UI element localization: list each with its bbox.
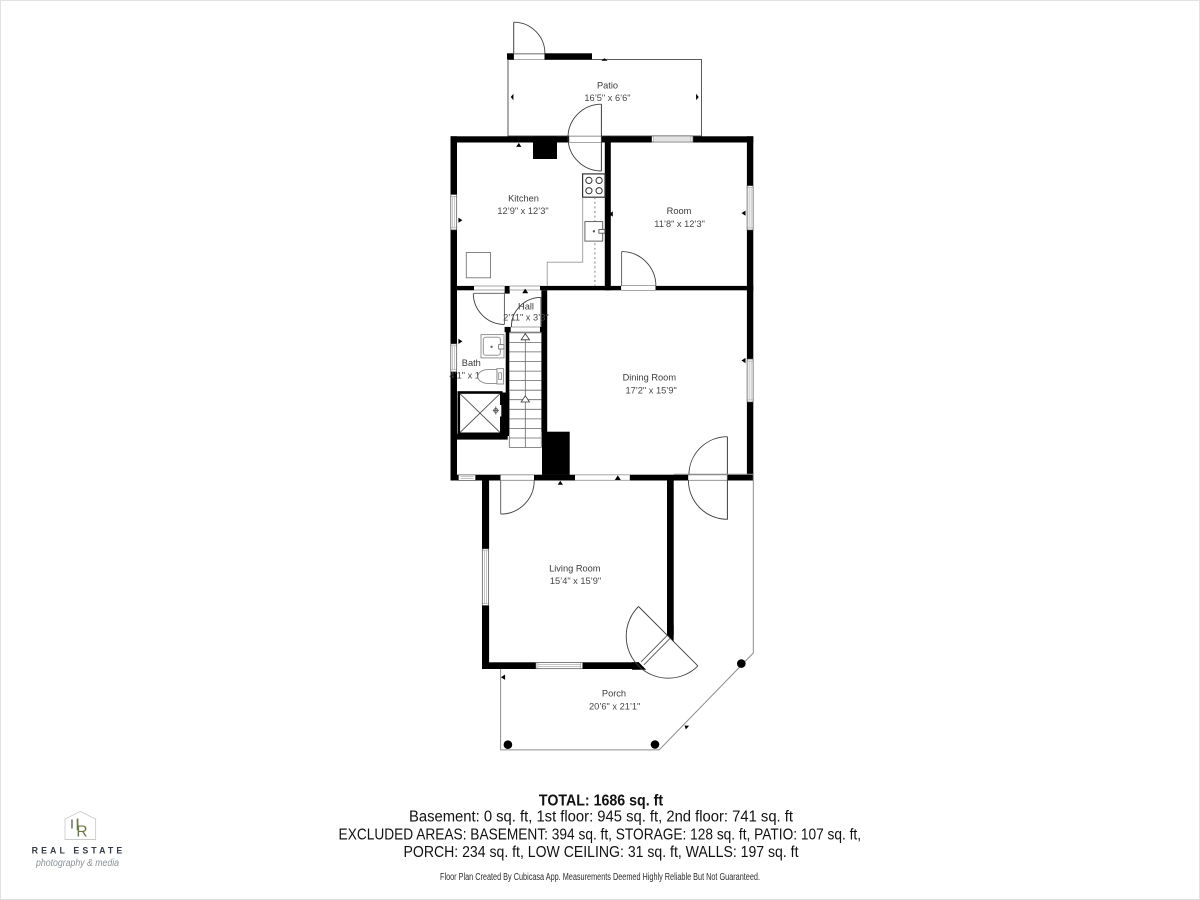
svg-text:Porch: Porch <box>602 689 626 699</box>
svg-text:Floor Plan Created By Cubicasa: Floor Plan Created By Cubicasa App. Meas… <box>440 872 760 883</box>
svg-text:PORCH: 234 sq. ft, LOW CEILING: PORCH: 234 sq. ft, LOW CEILING: 31 sq. f… <box>404 844 800 861</box>
svg-text:REAL ESTATE: REAL ESTATE <box>32 845 126 855</box>
svg-text:EXCLUDED AREAS: BASEMENT: 394: EXCLUDED AREAS: BASEMENT: 394 sq. ft, ST… <box>339 826 862 843</box>
svg-text:17’2" x 15’9": 17’2" x 15’9" <box>625 386 676 396</box>
svg-text:16’5" x 6’6": 16’5" x 6’6" <box>584 93 630 103</box>
svg-text:R: R <box>76 823 87 840</box>
svg-text:15’4" x 15’9": 15’4" x 15’9" <box>550 576 601 586</box>
svg-text:Basement: 0 sq. ft, 1st floor:: Basement: 0 sq. ft, 1st floor: 945 sq. f… <box>409 808 794 825</box>
svg-text:Dining Room: Dining Room <box>623 373 677 383</box>
svg-text:photography & media: photography & media <box>35 857 119 869</box>
svg-text:I: I <box>70 818 73 832</box>
svg-text:2’11" x 3’3": 2’11" x 3’3" <box>503 313 548 323</box>
svg-text:Room: Room <box>667 206 692 216</box>
svg-text:Hall: Hall <box>518 302 534 312</box>
svg-text:Living Room: Living Room <box>549 563 601 573</box>
svg-text:TOTAL: 1686 sq. ft: TOTAL: 1686 sq. ft <box>539 792 664 809</box>
svg-text:11’8" x 12’3": 11’8" x 12’3" <box>654 219 705 229</box>
svg-text:Patio: Patio <box>597 81 618 91</box>
svg-text:Bath: Bath <box>462 358 481 368</box>
svg-text:Kitchen: Kitchen <box>508 193 539 203</box>
svg-text:20’6" x 21’1": 20’6" x 21’1" <box>589 701 640 711</box>
svg-text:12’9" x 12’3": 12’9" x 12’3" <box>497 206 548 216</box>
